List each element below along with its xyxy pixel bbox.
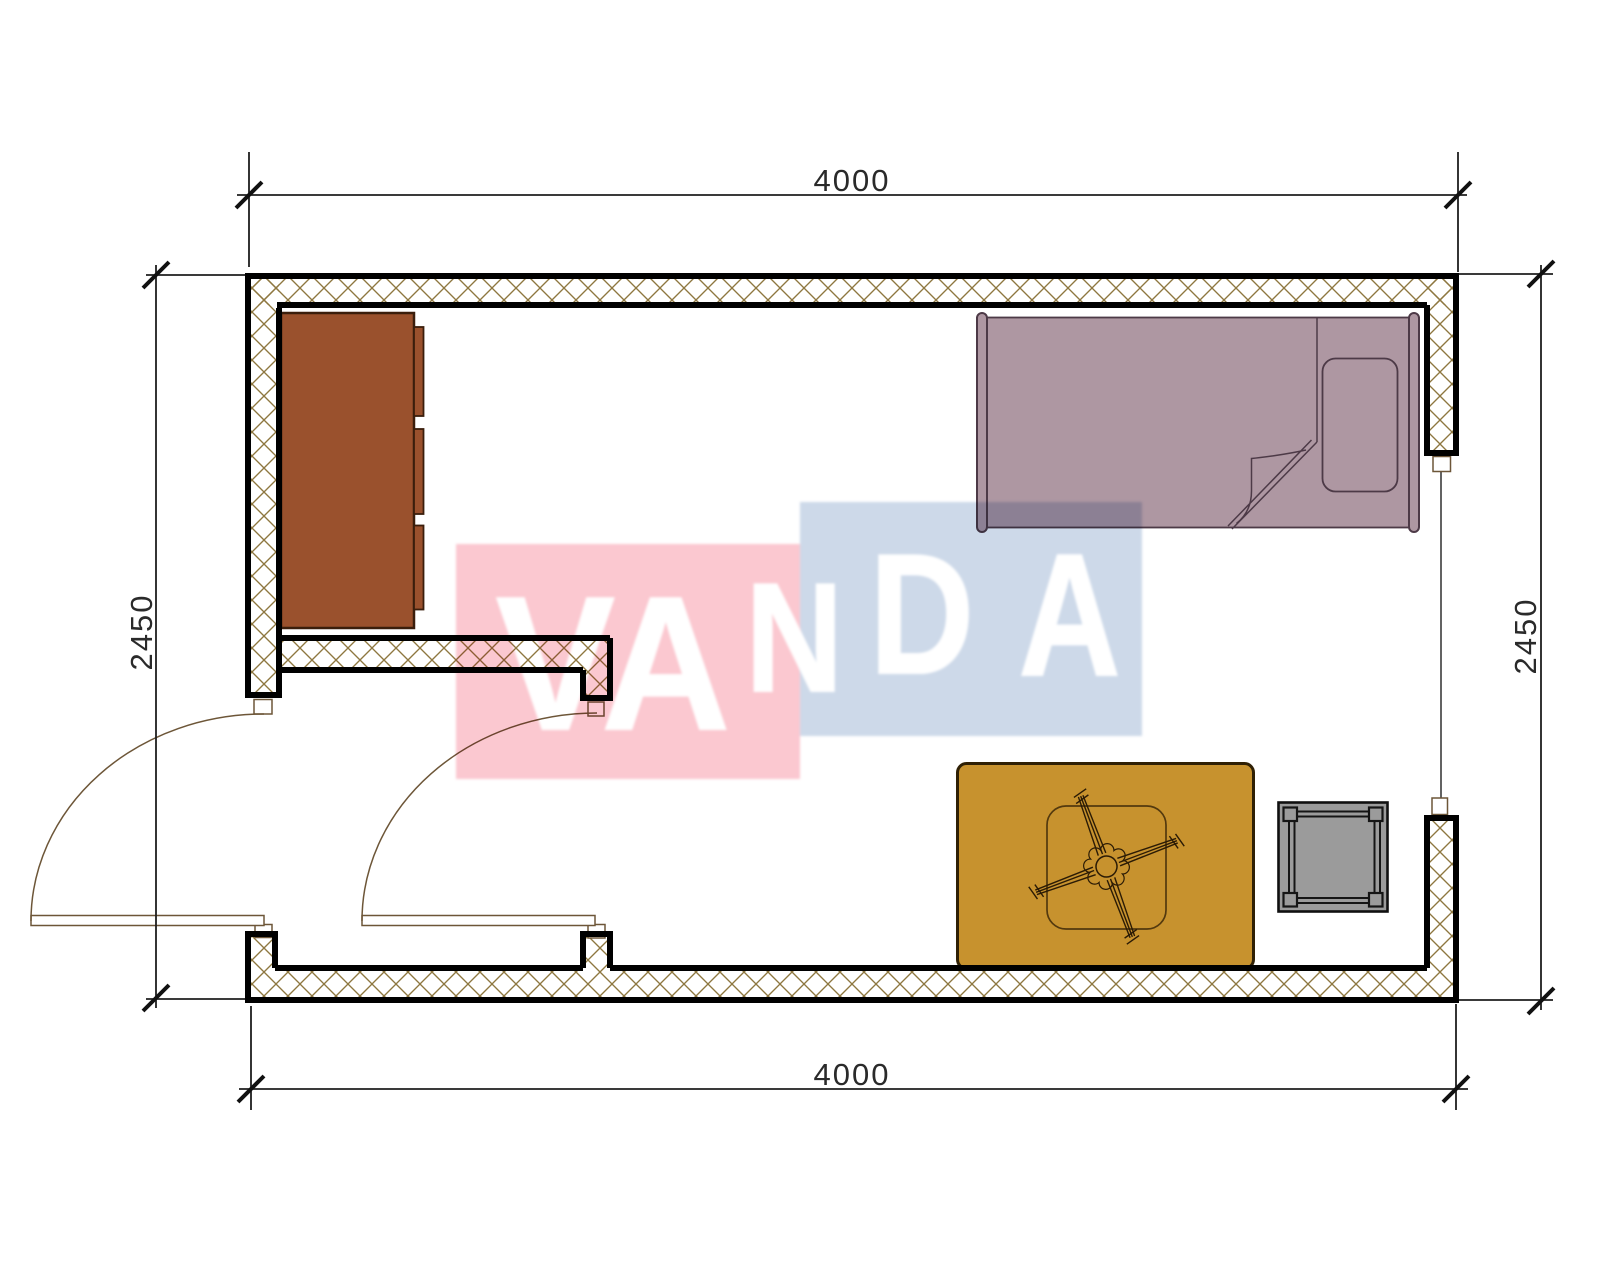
svg-text:2450: 2450 (1508, 598, 1543, 675)
svg-text:4000: 4000 (814, 1057, 891, 1092)
svg-text:4000: 4000 (814, 163, 891, 198)
svg-text:2450: 2450 (124, 594, 159, 671)
